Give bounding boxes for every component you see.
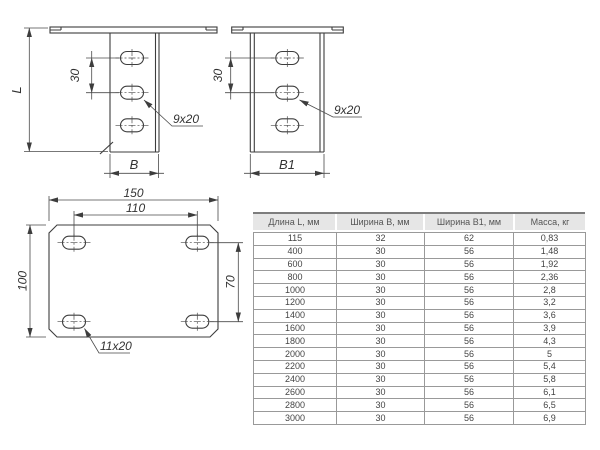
table-cell: 30 (337, 258, 425, 271)
table-cell: 56 (425, 412, 514, 425)
spec-table-body: 11532620,8340030561,4860030561,928003056… (254, 233, 586, 425)
dim-label-70: 70 (224, 275, 238, 289)
table-row: 160030563,9 (254, 322, 586, 335)
table-cell: 30 (337, 386, 425, 399)
table-cell: 30 (337, 335, 425, 348)
table-cell: 32 (337, 233, 425, 246)
table-row: 100030562,8 (254, 284, 586, 297)
table-row: 11532620,83 (254, 233, 586, 246)
front-view-drawing: L 30 9x20 B (9, 27, 217, 178)
table-cell: 56 (425, 296, 514, 309)
table-cell: 6,5 (514, 399, 586, 412)
table-cell: 2800 (254, 399, 337, 412)
spec-table-body-table: 11532620,8340030561,4860030561,928003056… (253, 232, 586, 425)
table-cell: 1,48 (514, 245, 586, 258)
dim-label-30-front: 30 (68, 69, 82, 83)
dim-label-L: L (9, 86, 24, 93)
table-cell: 3000 (254, 412, 337, 425)
table-cell: 800 (254, 271, 337, 284)
table-row: 180030564,3 (254, 335, 586, 348)
plan-view-holes (58, 234, 214, 331)
table-cell: 2000 (254, 348, 337, 361)
page: { "drawings": { "front_view": { "length_… (0, 0, 600, 450)
table-cell: 2,36 (514, 271, 586, 284)
table-cell: 30 (337, 309, 425, 322)
table-cell: 30 (337, 271, 425, 284)
table-cell: 1000 (254, 284, 337, 297)
side-view-drawing: 30 9x20 B1 (211, 27, 362, 178)
table-cell: 30 (337, 399, 425, 412)
table-row: 220030565,4 (254, 360, 586, 373)
table-row: 260030566,1 (254, 386, 586, 399)
table-cell: 56 (425, 360, 514, 373)
table-cell: 30 (337, 296, 425, 309)
table-cell: 56 (425, 386, 514, 399)
col-header-length: Длина L, мм (253, 214, 335, 230)
table-cell: 3,2 (514, 296, 586, 309)
table-cell: 2400 (254, 373, 337, 386)
hole-size-label-front: 9x20 (173, 112, 199, 126)
table-row: 300030566,9 (254, 412, 586, 425)
table-cell: 4,3 (514, 335, 586, 348)
table-cell: 56 (425, 309, 514, 322)
table-cell: 5,4 (514, 360, 586, 373)
table-cell: 3,6 (514, 309, 586, 322)
table-cell: 56 (425, 322, 514, 335)
table-cell: 2600 (254, 386, 337, 399)
dim-label-B1: B1 (279, 157, 295, 172)
table-cell: 30 (337, 412, 425, 425)
table-cell: 600 (254, 258, 337, 271)
table-cell: 30 (337, 373, 425, 386)
dim-label-B: B (130, 157, 139, 172)
table-cell: 6,9 (514, 412, 586, 425)
table-cell: 5,8 (514, 373, 586, 386)
dim-label-30-side: 30 (211, 69, 225, 83)
dim-label-150: 150 (123, 186, 143, 200)
front-view-holes (116, 49, 149, 134)
side-view-holes (271, 49, 304, 134)
table-cell: 2200 (254, 360, 337, 373)
table-row: 140030563,6 (254, 309, 586, 322)
table-cell: 56 (425, 399, 514, 412)
table-cell: 1800 (254, 335, 337, 348)
table-cell: 1,92 (514, 258, 586, 271)
table-cell: 30 (337, 360, 425, 373)
col-header-width-b: Ширина B, мм (337, 214, 423, 230)
table-cell: 30 (337, 348, 425, 361)
table-cell: 0,83 (514, 233, 586, 246)
hole-size-label-side: 9x20 (334, 103, 360, 117)
table-row: 240030565,8 (254, 373, 586, 386)
table-cell: 56 (425, 271, 514, 284)
table-cell: 56 (425, 373, 514, 386)
table-cell: 400 (254, 245, 337, 258)
table-cell: 1200 (254, 296, 337, 309)
table-cell: 30 (337, 322, 425, 335)
col-header-width-b1: Ширина B1, мм (425, 214, 513, 230)
table-row: 80030562,36 (254, 271, 586, 284)
table-cell: 56 (425, 245, 514, 258)
table-cell: 5 (514, 348, 586, 361)
table-row: 60030561,92 (254, 258, 586, 271)
table-cell: 30 (337, 245, 425, 258)
table-row: 40030561,48 (254, 245, 586, 258)
table-row: 200030565 (254, 348, 586, 361)
table-cell: 6,1 (514, 386, 586, 399)
table-cell: 1600 (254, 322, 337, 335)
table-cell: 56 (425, 284, 514, 297)
table-cell: 2,8 (514, 284, 586, 297)
table-cell: 115 (254, 233, 337, 246)
hole-size-label-plan: 11x20 (100, 339, 132, 353)
dim-label-110: 110 (126, 201, 145, 215)
dim-label-100: 100 (16, 271, 30, 291)
table-cell: 56 (425, 258, 514, 271)
spec-table-header-row: Длина L, мм Ширина B, мм Ширина B1, мм М… (253, 212, 585, 230)
table-row: 280030566,5 (254, 399, 586, 412)
table-cell: 30 (337, 284, 425, 297)
table-cell: 56 (425, 348, 514, 361)
table-cell: 3,9 (514, 322, 586, 335)
col-header-mass: Масса, кг (515, 214, 585, 230)
table-row: 120030563,2 (254, 296, 586, 309)
table-cell: 62 (425, 233, 514, 246)
plan-view-drawing: 150 110 100 70 11x20 (16, 186, 244, 353)
table-cell: 1400 (254, 309, 337, 322)
table-cell: 56 (425, 335, 514, 348)
spec-table: Длина L, мм Ширина B, мм Ширина B1, мм М… (253, 212, 585, 425)
